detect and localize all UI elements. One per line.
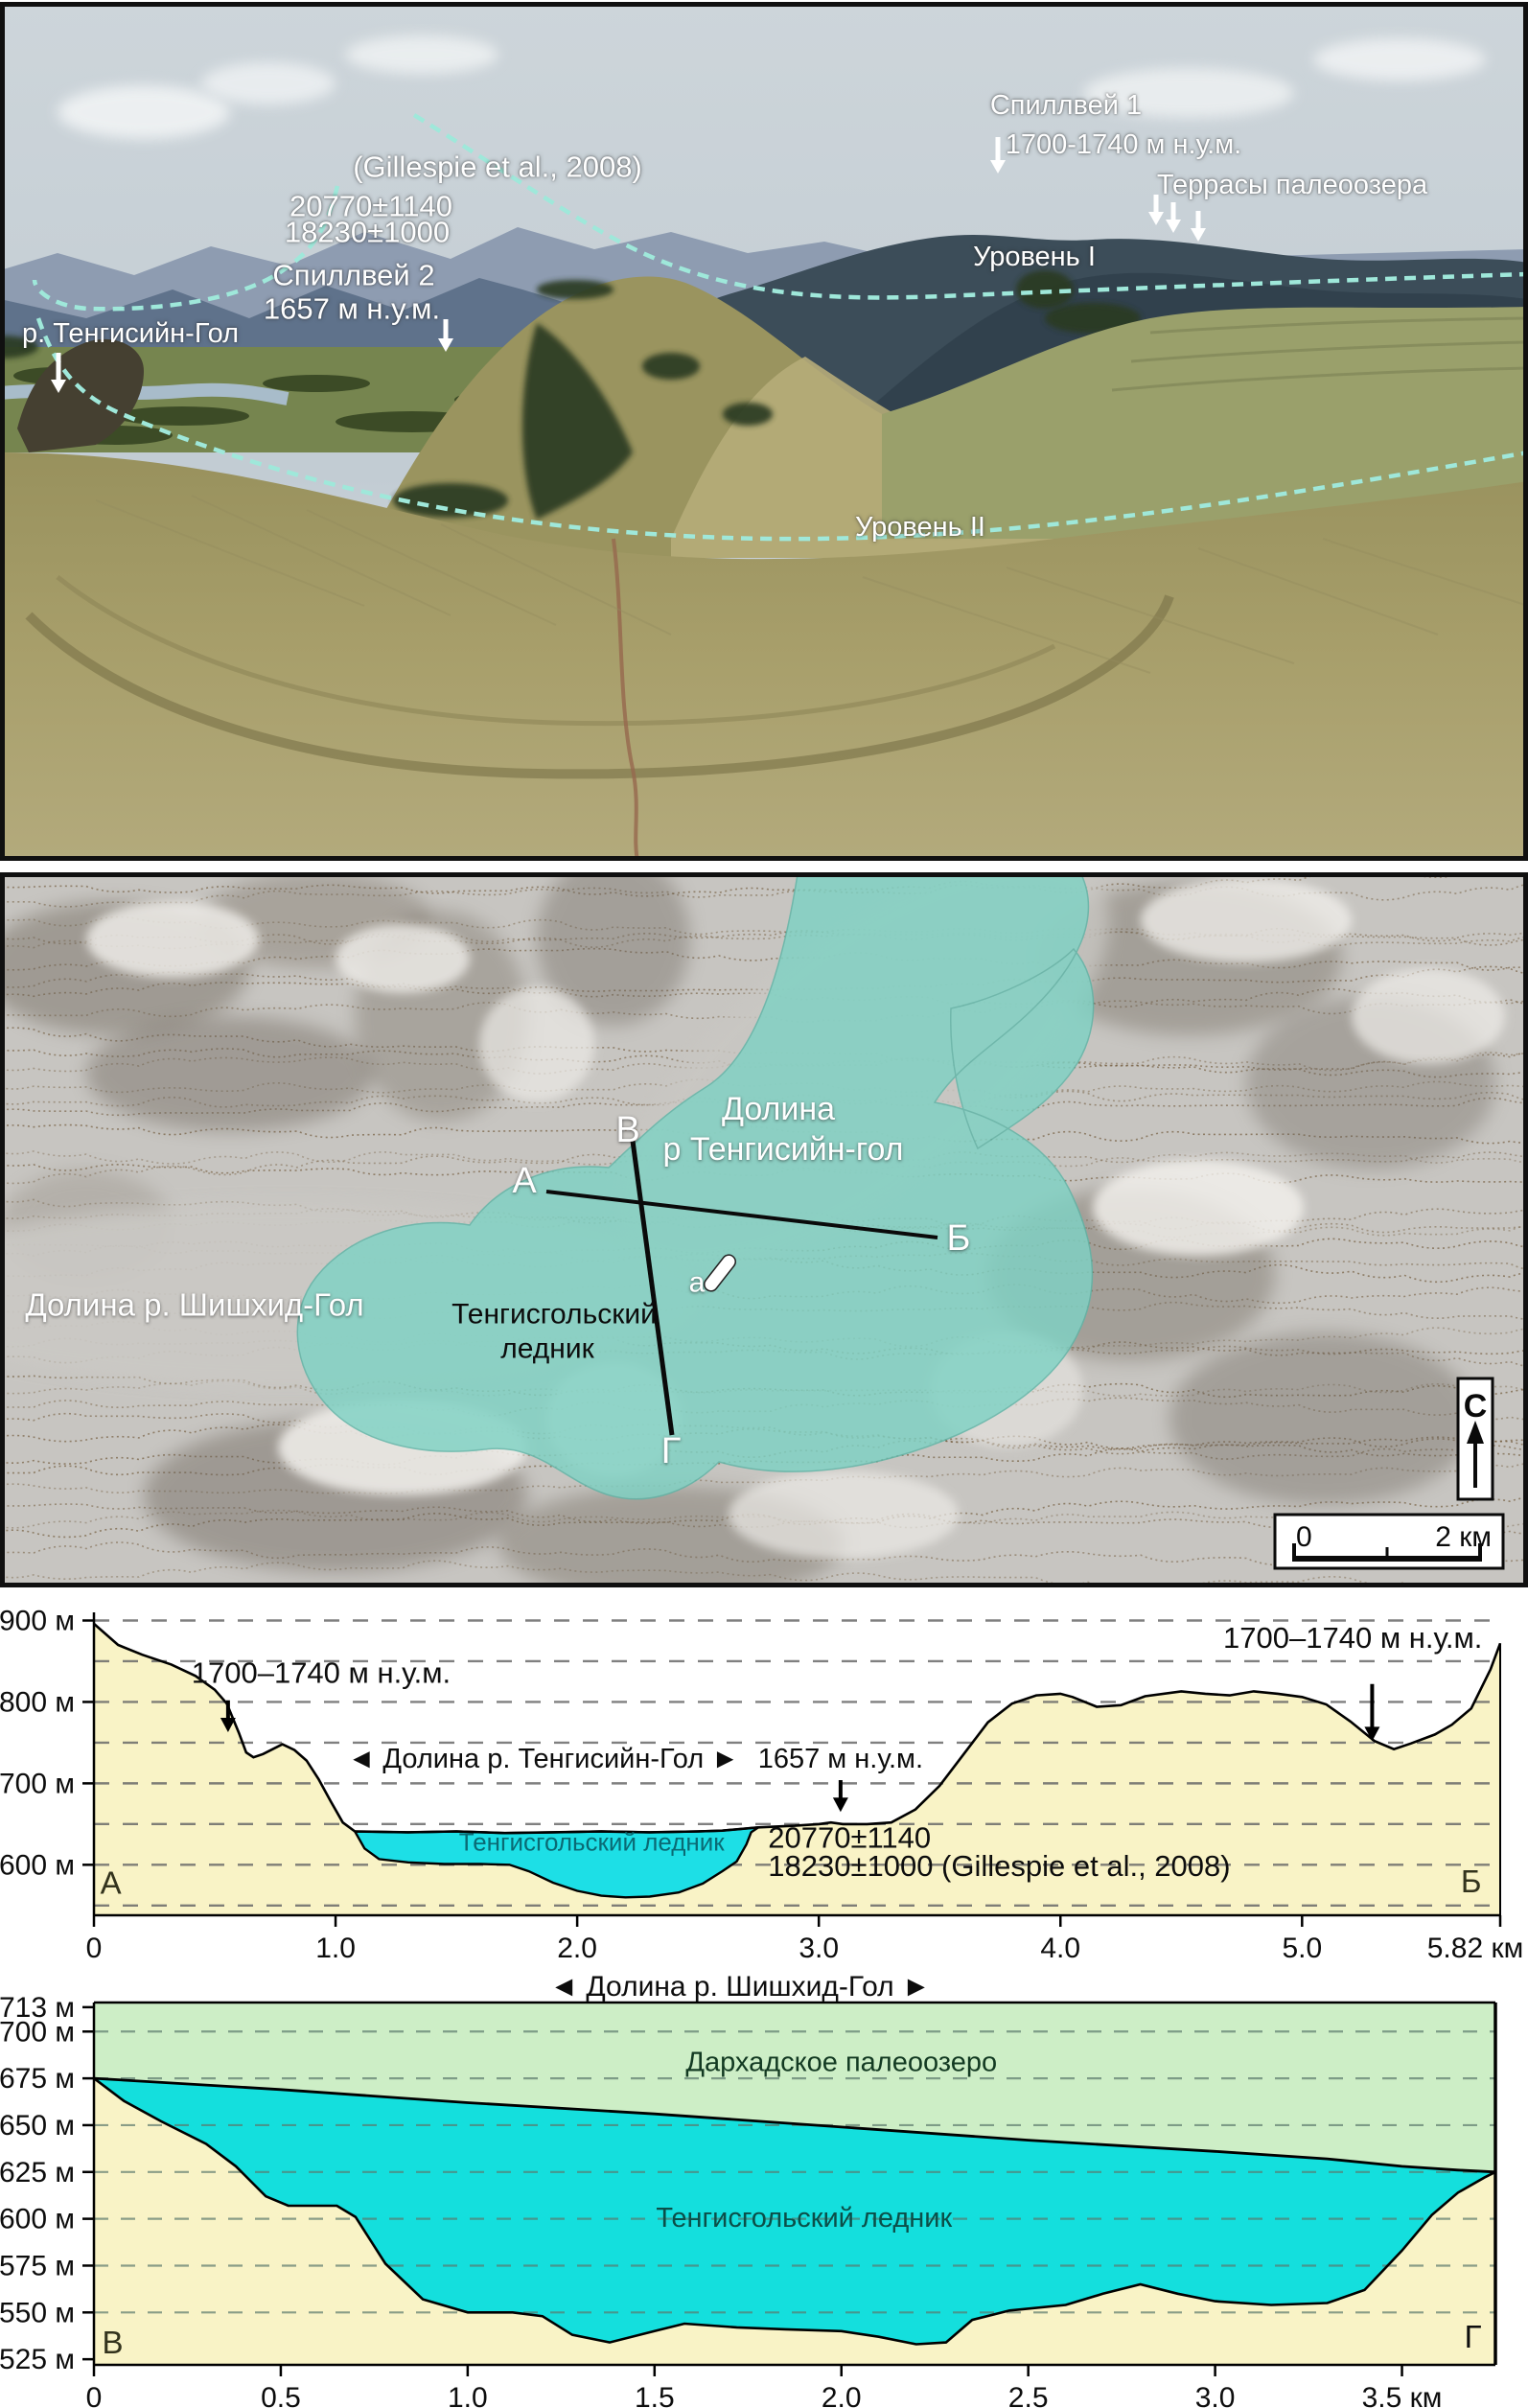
profile-V-G-ytick-1600: 1600 м	[0, 2204, 75, 2235]
profile-A-B-xtick-4: 4.0	[1040, 1933, 1080, 1964]
scale-end: 2 км	[1435, 1521, 1492, 1553]
profile-V-G-annotation-endpoint-G: Г	[1465, 2319, 1482, 2354]
profile-A-B-annotation-elev-note-left: 1700–1740 м н.у.м.	[192, 1656, 451, 1690]
profile-V-G-ytick-1650: 1650 м	[0, 2110, 75, 2142]
profile-A-B-xtick-5: 5.0	[1282, 1933, 1322, 1964]
north-indicator: С	[1458, 1378, 1493, 1499]
profile-vg-panel: 1713 м1700 м1675 м1650 м1625 м1600 м1575…	[0, 1971, 1528, 2408]
profile-A-B-annotation-glacier-name: Тенгисгольский ледник	[459, 1828, 726, 1857]
profile-V-G-xtick-3: 3.0	[1195, 2382, 1236, 2408]
profile-A-B-annotation-spillway2-note: 1657 м н.у.м.	[758, 1744, 923, 1774]
profile-A-B-xtick-5.82: 5.82 км	[1427, 1933, 1523, 1964]
profile-V-G-ytick-1700: 1700 м	[0, 2016, 75, 2048]
profile-V-G-xtick-3.5: 3.5 км	[1362, 2382, 1443, 2408]
north-label: С	[1464, 1388, 1488, 1424]
profile-V-G-annotation-glacier-name: Тенгисгольский ледник	[656, 2203, 952, 2234]
profile-A-B-ytick-1800: 1800 м	[0, 1686, 75, 1718]
profile-A-B-annotation-endpoint-B: Б	[1461, 1864, 1482, 1899]
profile-V-G-xtick-2: 2.0	[822, 2382, 862, 2408]
profile-A-B-xtick-0: 0	[86, 1933, 103, 1964]
photo-panel: (Gillespie et al., 2008)20770±114018230±…	[0, 2, 1528, 861]
profile-A-B-annotation-valley-note: ◄ Долина р. Тенгисийн-Гол ►	[348, 1744, 739, 1774]
profile-V-G-ytick-1625: 1625 м	[0, 2157, 75, 2188]
profile-V-G-xtick-0.5: 0.5	[261, 2382, 301, 2408]
profile-V-G-ytick-1550: 1550 м	[0, 2297, 75, 2328]
profile-V-G-ytick-1525: 1525 м	[0, 2344, 75, 2375]
elevation-profile-ab: 1600 м1700 м1800 м1900 м01.02.03.04.05.0…	[0, 1587, 1528, 1971]
profile-A-B-annotation-elev-note-right: 1700–1740 м н.у.м.	[1223, 1621, 1482, 1655]
profile-V-G-ytick-1575: 1575 м	[0, 2250, 75, 2281]
profile-V-G-xtick-0: 0	[86, 2382, 103, 2408]
profile-V-G-annotation-endpoint-V: В	[102, 2325, 123, 2360]
profile-A-B-annotation-age-note-2: 18230±1000 (Gillespie et al., 2008)	[768, 1849, 1230, 1883]
profile-A-B-annotation-endpoint-A: А	[101, 1865, 122, 1901]
profile-A-B-ytick-1900: 1900 м	[0, 1605, 75, 1636]
profile-V-G-xtick-1.5: 1.5	[635, 2382, 675, 2408]
profile-V-G-ytick-1675: 1675 м	[0, 2063, 75, 2095]
profile-A-B-xtick-2: 2.0	[557, 1933, 597, 1964]
landscape-illustration	[0, 2, 1528, 861]
profile-V-G-xtick-1: 1.0	[448, 2382, 488, 2408]
profile-A-B-arrow-1	[833, 1780, 848, 1812]
figure-page: (Gillespie et al., 2008)20770±114018230±…	[0, 0, 1528, 2408]
profile-A-B-ytick-1700: 1700 м	[0, 1768, 75, 1799]
map-panel: С 0 2 км Долинар Тенгисийн-голДолина р. …	[0, 872, 1528, 1587]
elevation-profile-vg: 1713 м1700 м1675 м1650 м1625 м1600 м1575…	[0, 1971, 1528, 2408]
profile-V-G-xtick-2.5: 2.5	[1008, 2382, 1049, 2408]
scale-bar: 0 2 км	[1275, 1515, 1503, 1568]
relief-map: С 0 2 км	[0, 872, 1528, 1587]
profile-vg-title: ◄ Долина р. Шишхид-Гол ►	[549, 1971, 930, 2003]
profile-A-B-xtick-3: 3.0	[799, 1933, 839, 1964]
profile-ab-panel: 1600 м1700 м1800 м1900 м01.02.03.04.05.0…	[0, 1587, 1528, 1971]
profile-A-B-ytick-1600: 1600 м	[0, 1849, 75, 1881]
scale-start: 0	[1296, 1521, 1312, 1553]
profile-A-B-arrow-2	[1364, 1684, 1379, 1742]
profile-V-G-annotation-paleolake-name: Дархадское палеоозеро	[685, 2048, 997, 2078]
profile-A-B-xtick-1: 1.0	[315, 1933, 356, 1964]
